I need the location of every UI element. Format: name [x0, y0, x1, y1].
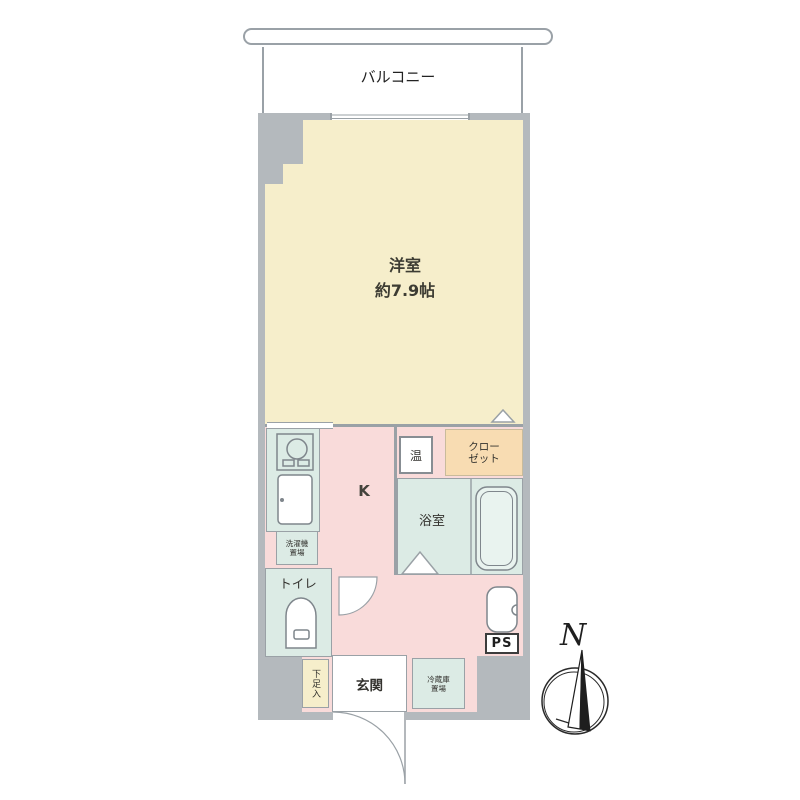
floorplan-canvas: バルコニー 洋室 約7.9帖 K 洗濯機置場 温 クローゼット 浴室 トイレ P… — [0, 0, 800, 800]
fridge-space: 冷蔵庫置場 — [412, 658, 465, 709]
kitchen-label: K — [344, 480, 384, 502]
kitchen-counter — [266, 428, 320, 532]
western-room-name: 洋室 — [340, 253, 470, 278]
washer-space: 洗濯機置場 — [276, 531, 318, 565]
closet-label: クローゼット — [466, 441, 502, 465]
wall-notch-upper — [265, 120, 303, 164]
entrance-door-gap — [333, 712, 406, 720]
wall-block-bottom-right — [477, 656, 523, 712]
balcony-railing — [243, 28, 553, 45]
western-room-size: 約7.9帖 — [340, 278, 470, 303]
fridge-space-label: 冷蔵庫置場 — [426, 675, 451, 693]
closet: クローゼット — [445, 429, 523, 476]
compass-north-label: N — [560, 618, 600, 652]
compass-needle — [568, 650, 590, 731]
balcony-side-line-left — [262, 47, 264, 114]
wall-block-bottom-left — [265, 657, 302, 712]
bathroom-label: 浴室 — [408, 510, 456, 528]
water-heater-box: 温 — [399, 436, 433, 474]
wall-notch-lower — [265, 164, 283, 184]
balcony-label: バルコニー — [328, 64, 468, 88]
balcony-window — [330, 113, 470, 120]
entrance-door-arc — [333, 712, 405, 784]
pipe-space-box: PS — [485, 633, 519, 654]
balcony-side-line-right — [521, 47, 523, 114]
washer-space-label: 洗濯機置場 — [285, 539, 310, 557]
shoe-cabinet: 下足入 — [302, 659, 329, 708]
compass-rose — [542, 668, 608, 734]
shoe-cabinet-label: 下足入 — [309, 669, 322, 699]
toilet-label: トイレ — [272, 574, 324, 590]
entrance: 玄関 — [332, 655, 407, 712]
western-room-label: 洋室 約7.9帖 — [340, 253, 470, 303]
